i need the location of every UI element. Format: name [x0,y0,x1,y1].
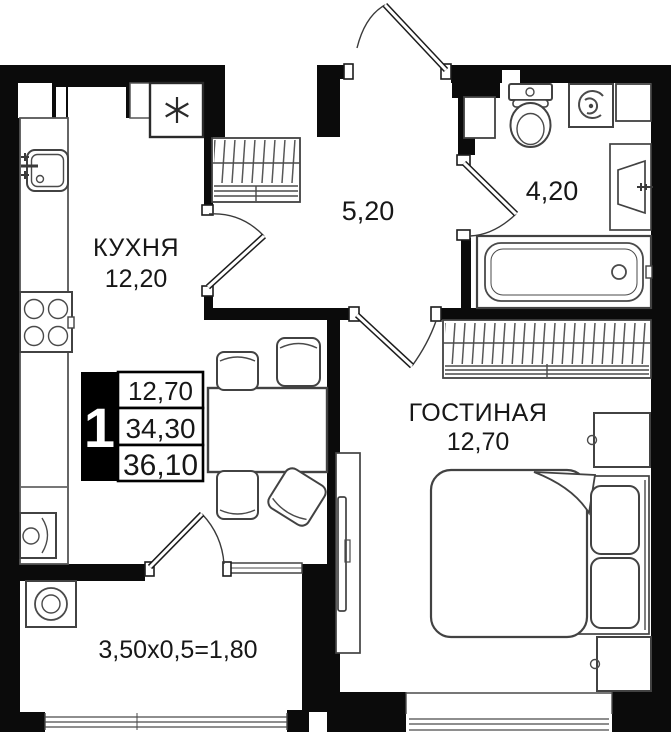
info-area-row3: 36,10 [123,449,198,482]
bathroom-door [457,155,516,240]
kitchen-label: КУХНЯ [93,234,179,262]
kitchen-counter-segment [130,83,150,118]
chair [217,352,258,390]
chair [277,338,320,386]
toilet [509,84,552,147]
kitchen-sink [21,150,68,191]
wall-cabinet-cutout [68,87,126,118]
floor-plan-page: КУХНЯ 12,20 ГОСТИНАЯ 12,70 5,20 4,20 3,5… [0,0,671,732]
balcony-area-label: 3,50x0,5=1,80 [98,636,257,664]
living-room-door [349,307,441,366]
balcony-door [145,514,231,576]
chair [217,471,258,519]
living-label: ГОСТИНАЯ [409,399,548,427]
floor-plan: КУХНЯ 12,20 ГОСТИНАЯ 12,70 5,20 4,20 3,5… [0,0,671,732]
living-room-fixtures [336,320,651,730]
wall-cabinet-cutout [56,87,66,118]
chair [265,465,328,528]
wardrobe [443,320,651,378]
wall-duct-cutout [502,70,520,83]
washing-machine [569,84,613,127]
bathroom-area-label: 4,20 [526,176,579,206]
kitchen-area-label: 12,20 [105,265,168,293]
entry-door [344,5,451,79]
pillow [591,558,639,628]
oven-appliance [20,513,56,558]
duct-box [464,97,495,138]
wall-cabinet-cutout [18,83,52,118]
nightstand [588,413,651,467]
balcony-glazing [45,713,287,730]
bathtub [477,236,652,308]
fridge [150,83,203,137]
tv-stand [336,453,360,653]
duct-box [616,84,651,121]
rooms-count: 1 [84,396,115,459]
bed [431,470,649,637]
info-area-row1: 12,70 [128,376,193,406]
living-room-window [406,692,612,730]
balcony-window [228,563,302,573]
hallway-area-label: 5,20 [342,196,395,226]
living-area-label: 12,70 [447,428,510,456]
stove [20,292,74,352]
bathroom-sink [610,144,653,230]
hallway-coat-rack [212,138,300,202]
kitchen-door [202,205,264,296]
apartment-info-box: 1 12,70 34,30 36,10 [81,372,203,482]
info-area-row2: 34,30 [125,413,195,444]
pillow [591,486,639,554]
balcony-washing-machine [26,581,76,627]
bed-blanket [431,470,587,637]
nightstand [591,637,652,691]
dining-table [208,388,327,472]
